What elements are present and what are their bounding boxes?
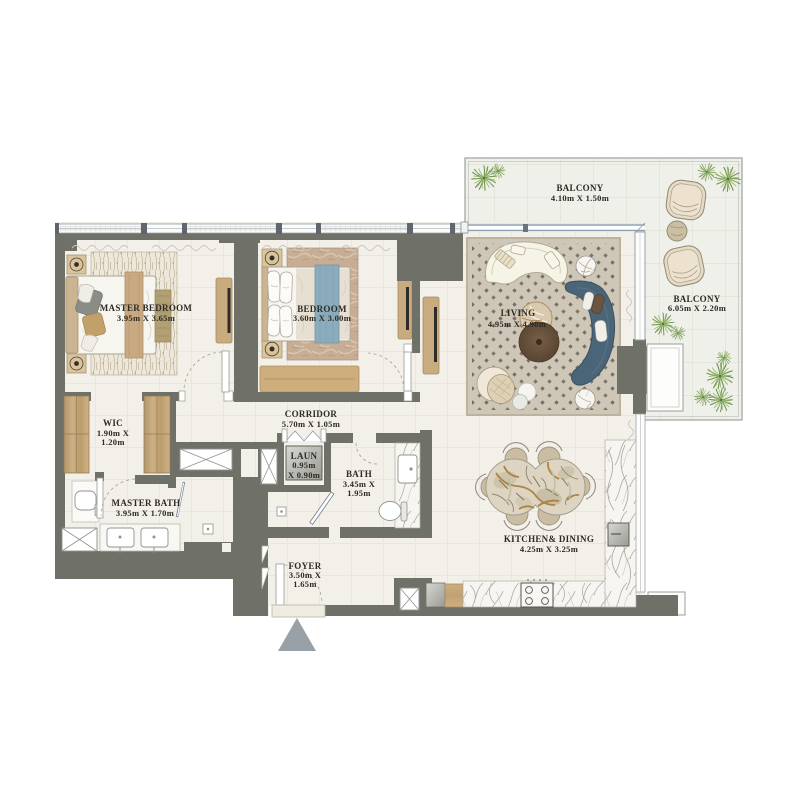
svg-text:LIVING: LIVING — [501, 308, 536, 318]
svg-text:BALCONY: BALCONY — [556, 183, 603, 193]
svg-text:3.95m X 3.65m: 3.95m X 3.65m — [117, 313, 175, 323]
svg-text:1.20m: 1.20m — [101, 437, 124, 447]
svg-text:MASTER BATH: MASTER BATH — [112, 498, 181, 508]
svg-text:1.65m: 1.65m — [293, 579, 316, 589]
svg-text:CORRIDOR: CORRIDOR — [285, 409, 338, 419]
svg-text:5.70m X 1.05m: 5.70m X 1.05m — [282, 419, 340, 429]
svg-text:X 0.90m: X 0.90m — [288, 470, 320, 480]
svg-text:KITCHEN& DINING: KITCHEN& DINING — [504, 534, 594, 544]
svg-text:4.10m X 1.50m: 4.10m X 1.50m — [551, 193, 609, 203]
svg-text:1.95m: 1.95m — [347, 488, 370, 498]
svg-text:6.05m X 2.20m: 6.05m X 2.20m — [668, 303, 726, 313]
svg-text:WIC: WIC — [103, 418, 123, 428]
svg-text:4.25m X 3.25m: 4.25m X 3.25m — [520, 544, 578, 554]
svg-text:MASTER BEDROOM: MASTER BEDROOM — [100, 303, 193, 313]
svg-text:0.95m: 0.95m — [292, 460, 315, 470]
svg-text:4.95m X 4.90m: 4.95m X 4.90m — [488, 319, 546, 329]
svg-text:BATH: BATH — [346, 469, 372, 479]
svg-text:3.95m X 1.70m: 3.95m X 1.70m — [116, 508, 174, 518]
svg-text:3.60m X 3.00m: 3.60m X 3.00m — [293, 313, 351, 323]
